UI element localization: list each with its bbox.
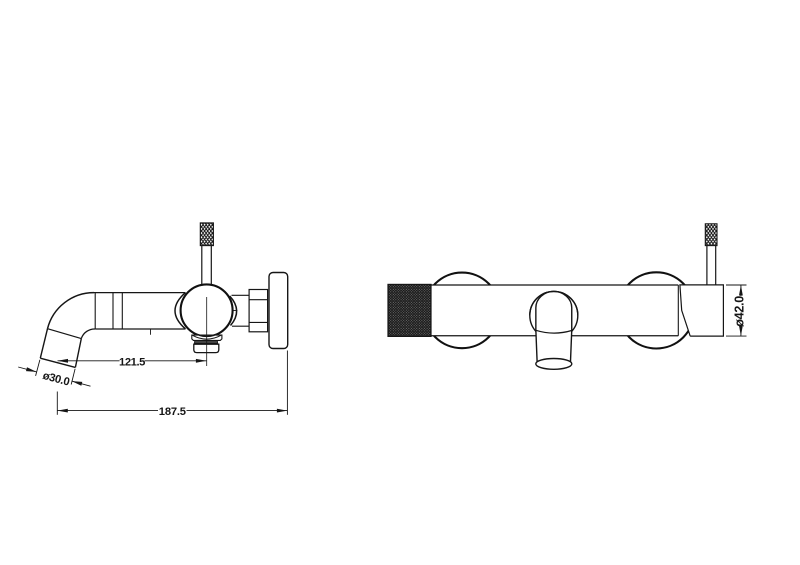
svg-text:ø30.0: ø30.0 (41, 370, 70, 389)
svg-text:187.5: 187.5 (159, 406, 186, 418)
svg-text:ø42.0: ø42.0 (733, 296, 747, 327)
svg-text:121.5: 121.5 (119, 356, 145, 368)
